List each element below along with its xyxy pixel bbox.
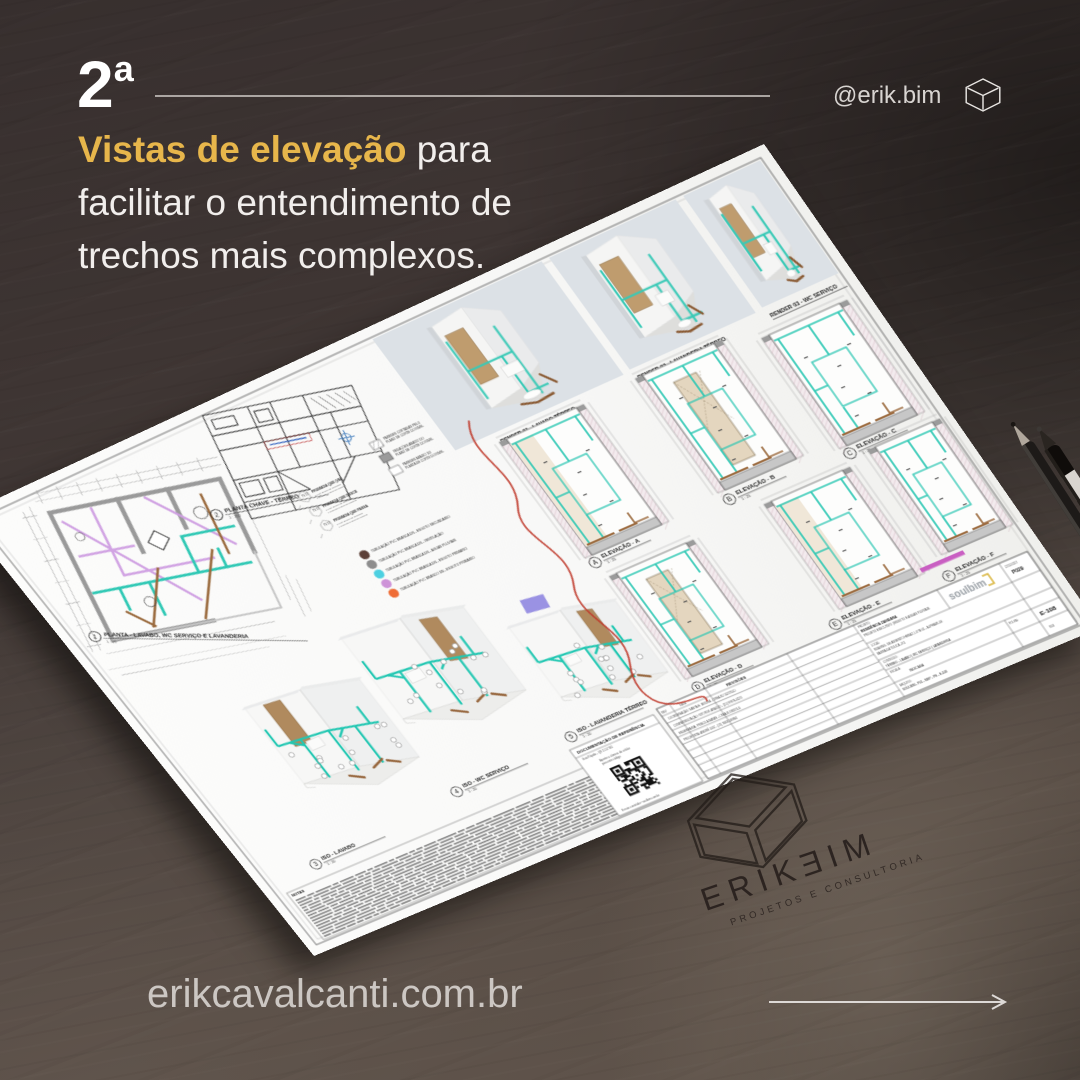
svg-text:A: A xyxy=(592,559,601,567)
svg-text:F: F xyxy=(945,573,953,580)
svg-text:E: E xyxy=(832,621,841,629)
svg-text:TV 57: TV 57 xyxy=(301,492,310,498)
svg-text:2: 2 xyxy=(214,512,221,519)
svg-text:C: C xyxy=(846,450,855,458)
svg-text:1: 1 xyxy=(92,634,97,640)
svg-text:TV 57: TV 57 xyxy=(323,521,332,527)
svg-text:ISO - WC SERVIÇO: ISO - WC SERVIÇO xyxy=(462,765,512,789)
svg-text:3: 3 xyxy=(313,861,320,868)
svg-text:B: B xyxy=(726,496,735,504)
svg-text:5: 5 xyxy=(568,734,576,741)
svg-text:4: 4 xyxy=(454,789,462,796)
svg-text:ISO - LAVABO: ISO - LAVABO xyxy=(321,843,358,862)
svg-text:1 : 25: 1 : 25 xyxy=(106,639,118,644)
svg-text:TV 57: TV 57 xyxy=(312,506,321,512)
svg-text:NOTAS: NOTAS xyxy=(290,889,305,898)
